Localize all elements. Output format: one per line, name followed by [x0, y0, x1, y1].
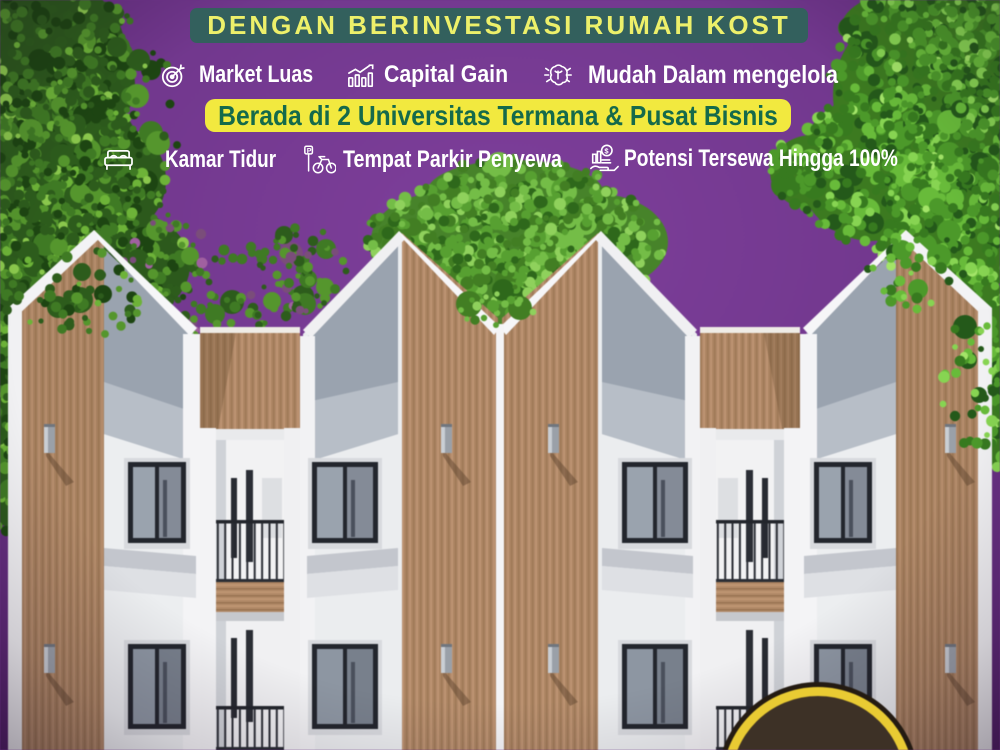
svg-text:$: $ — [604, 146, 609, 155]
